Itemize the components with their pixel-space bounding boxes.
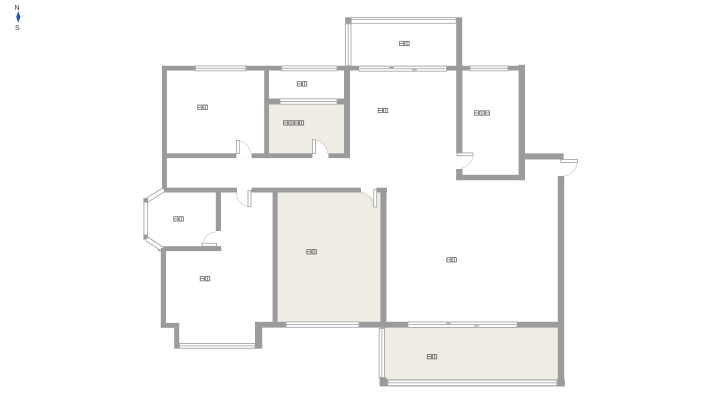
svg-text:N: N xyxy=(15,5,20,12)
svg-text:S: S xyxy=(15,25,20,32)
